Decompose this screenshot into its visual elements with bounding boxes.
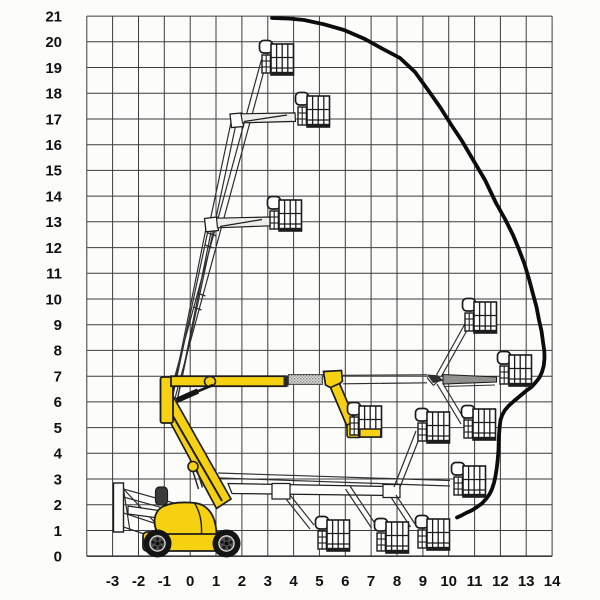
svg-text:2: 2 (238, 573, 246, 590)
svg-text:13: 13 (518, 573, 535, 590)
svg-text:1: 1 (54, 523, 62, 540)
svg-text:16: 16 (45, 137, 62, 154)
svg-text:7: 7 (54, 369, 62, 386)
svg-text:1: 1 (212, 573, 220, 590)
svg-text:-3: -3 (106, 573, 119, 590)
svg-text:18: 18 (45, 86, 62, 103)
svg-text:3: 3 (264, 573, 272, 590)
svg-text:9: 9 (419, 573, 427, 590)
svg-text:10: 10 (45, 291, 62, 308)
svg-text:3: 3 (54, 471, 62, 488)
svg-text:2: 2 (54, 497, 62, 514)
svg-text:5: 5 (315, 573, 323, 590)
svg-text:11: 11 (46, 266, 62, 283)
svg-text:10: 10 (440, 573, 457, 590)
svg-text:-1: -1 (158, 573, 171, 590)
svg-text:8: 8 (393, 573, 401, 590)
svg-text:14: 14 (45, 188, 62, 205)
svg-text:11: 11 (467, 573, 483, 590)
svg-text:8: 8 (54, 343, 62, 360)
svg-text:20: 20 (45, 34, 62, 51)
svg-text:12: 12 (45, 240, 62, 257)
svg-text:5: 5 (54, 420, 62, 437)
svg-text:14: 14 (544, 573, 561, 590)
svg-text:-2: -2 (132, 573, 145, 590)
svg-text:4: 4 (54, 446, 63, 463)
svg-text:0: 0 (54, 549, 62, 566)
svg-text:19: 19 (45, 60, 62, 77)
svg-text:21: 21 (45, 8, 62, 25)
svg-text:13: 13 (45, 214, 62, 231)
svg-text:7: 7 (367, 573, 375, 590)
svg-text:6: 6 (341, 573, 349, 590)
svg-text:6: 6 (54, 394, 62, 411)
svg-text:4: 4 (289, 573, 298, 590)
svg-text:15: 15 (45, 163, 62, 180)
svg-text:17: 17 (45, 111, 62, 128)
svg-text:12: 12 (492, 573, 509, 590)
svg-text:0: 0 (186, 573, 194, 590)
svg-text:9: 9 (54, 317, 62, 334)
